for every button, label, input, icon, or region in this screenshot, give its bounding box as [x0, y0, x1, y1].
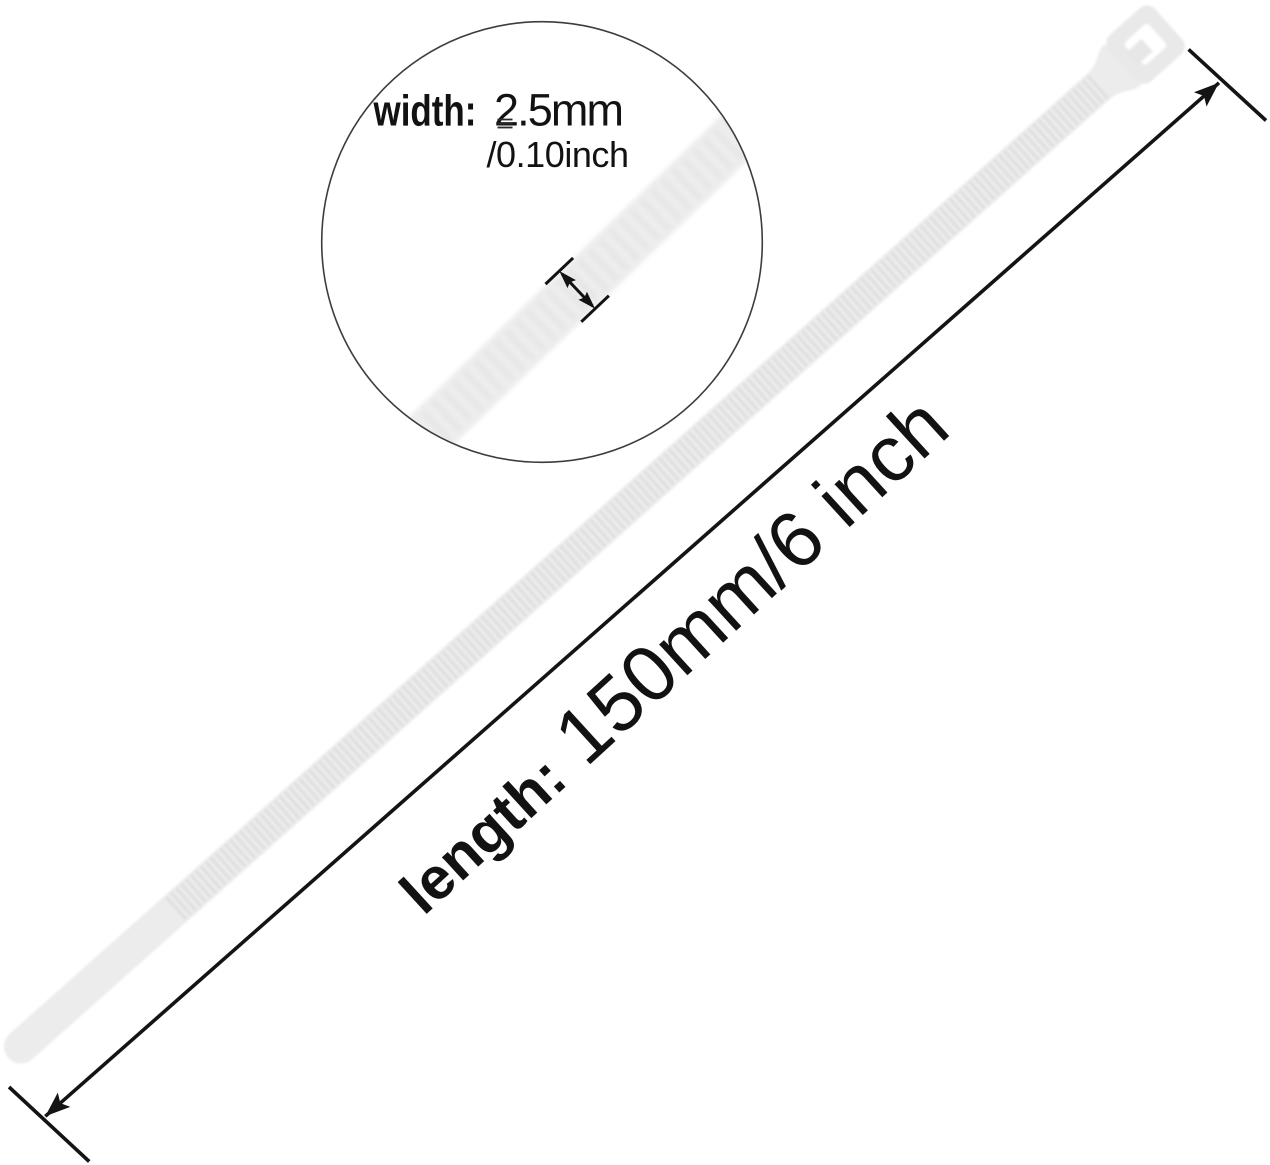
svg-text:/0.10inch: /0.10inch	[487, 134, 630, 175]
svg-text:2.5mm: 2.5mm	[494, 85, 624, 136]
svg-text:width:: width:	[373, 87, 477, 136]
